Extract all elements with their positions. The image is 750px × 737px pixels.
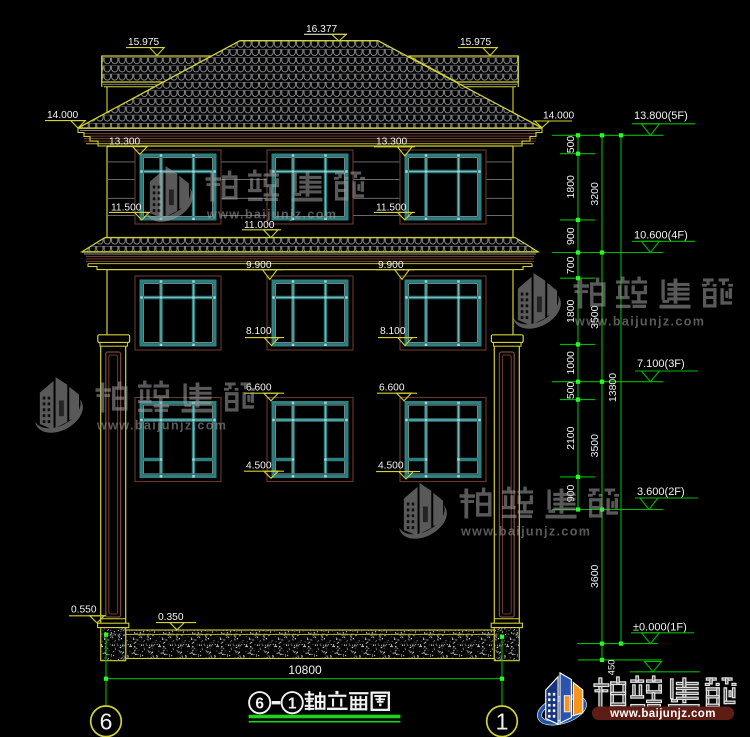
svg-text:700: 700: [565, 256, 577, 274]
svg-text:www.baijunjz.com: www.baijunjz.com: [96, 419, 227, 433]
svg-text:2100: 2100: [565, 426, 577, 450]
svg-text:11.500: 11.500: [376, 202, 407, 213]
svg-text:8.100: 8.100: [246, 326, 272, 337]
svg-text:7.100(3F): 7.100(3F): [637, 358, 685, 370]
svg-text:10800: 10800: [288, 663, 322, 677]
svg-text:0.550: 0.550: [71, 605, 97, 616]
svg-text:6.600: 6.600: [379, 383, 405, 394]
svg-text:450: 450: [607, 659, 618, 675]
svg-text:500: 500: [565, 381, 577, 399]
svg-text:3500: 3500: [589, 434, 601, 458]
svg-text:14.000: 14.000: [543, 111, 574, 122]
svg-text:1000: 1000: [565, 351, 577, 375]
svg-text:3200: 3200: [589, 182, 601, 206]
svg-text:16.377: 16.377: [306, 24, 337, 35]
svg-text:11.500: 11.500: [111, 202, 142, 213]
svg-text:±0.000(1F): ±0.000(1F): [633, 622, 687, 634]
svg-text:6: 6: [255, 695, 264, 712]
svg-text:1: 1: [496, 709, 509, 735]
svg-text:3.600(2F): 3.600(2F): [637, 486, 685, 498]
svg-text:1: 1: [288, 695, 297, 712]
svg-text:8.100: 8.100: [380, 326, 406, 337]
svg-text:13800: 13800: [607, 373, 619, 402]
svg-text:0.350: 0.350: [158, 612, 184, 623]
svg-text:500: 500: [565, 136, 577, 154]
svg-text:4.500: 4.500: [246, 461, 272, 472]
svg-text:www.baijunjz.com: www.baijunjz.com: [206, 208, 337, 222]
svg-text:10.600(4F): 10.600(4F): [634, 230, 688, 242]
svg-text:15.975: 15.975: [460, 37, 491, 48]
svg-text:www.baijunjz.com: www.baijunjz.com: [574, 315, 705, 329]
svg-text:6: 6: [100, 709, 113, 735]
svg-text:13.300: 13.300: [376, 136, 407, 147]
svg-text:www.baijunjz.com: www.baijunjz.com: [609, 708, 716, 720]
svg-text:14.000: 14.000: [47, 110, 78, 121]
svg-text:13.300: 13.300: [109, 136, 140, 147]
svg-text:www.baijunjz.com: www.baijunjz.com: [460, 525, 591, 539]
svg-text:1800: 1800: [565, 175, 577, 199]
svg-text:13.800(5F): 13.800(5F): [634, 110, 688, 122]
svg-text:15.975: 15.975: [128, 37, 159, 48]
svg-text:4.500: 4.500: [378, 461, 404, 472]
svg-text:900: 900: [565, 227, 577, 245]
svg-text:3600: 3600: [589, 564, 601, 588]
